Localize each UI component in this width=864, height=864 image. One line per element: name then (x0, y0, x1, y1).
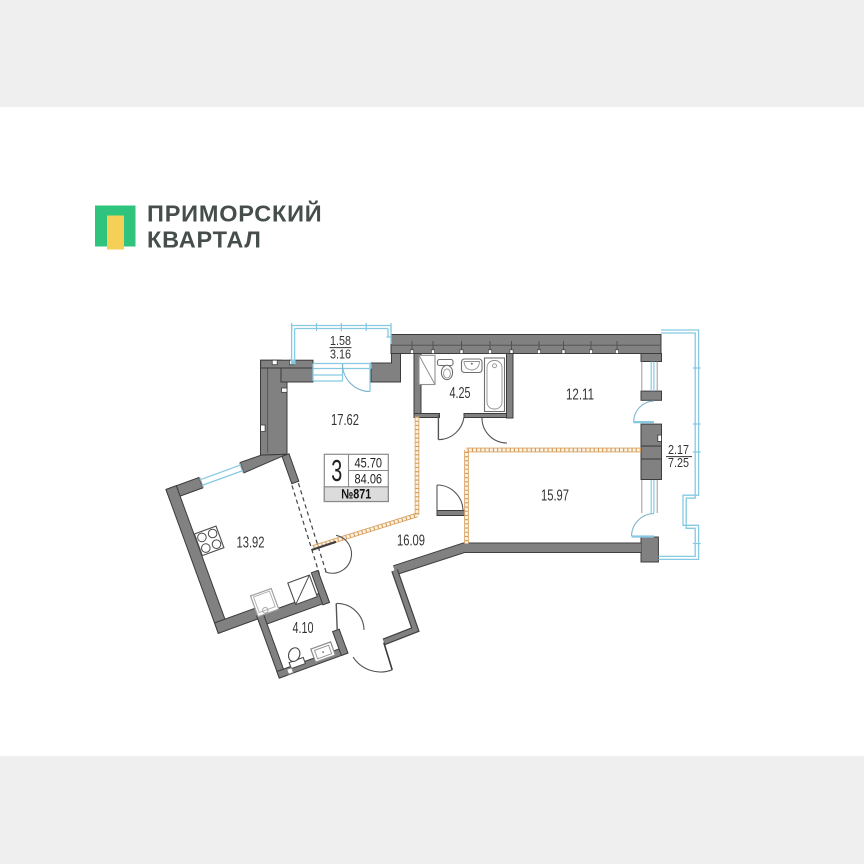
svg-text:16.09: 16.09 (397, 533, 425, 550)
svg-text:3: 3 (331, 453, 342, 488)
svg-text:13.92: 13.92 (237, 535, 265, 552)
svg-text:№871: №871 (341, 487, 371, 502)
svg-text:17.62: 17.62 (331, 412, 359, 429)
svg-text:7.25: 7.25 (668, 455, 689, 470)
svg-text:КВАРТАЛ: КВАРТАЛ (147, 227, 262, 253)
svg-text:4.25: 4.25 (450, 385, 471, 402)
svg-text:12.11: 12.11 (566, 387, 594, 404)
svg-text:84.06: 84.06 (355, 471, 383, 486)
svg-text:45.70: 45.70 (355, 455, 383, 470)
svg-text:4.10: 4.10 (293, 620, 314, 637)
svg-text:ПРИМОРСКИЙ: ПРИМОРСКИЙ (147, 200, 323, 227)
svg-text:15.97: 15.97 (541, 488, 569, 505)
svg-text:3.16: 3.16 (330, 347, 351, 362)
